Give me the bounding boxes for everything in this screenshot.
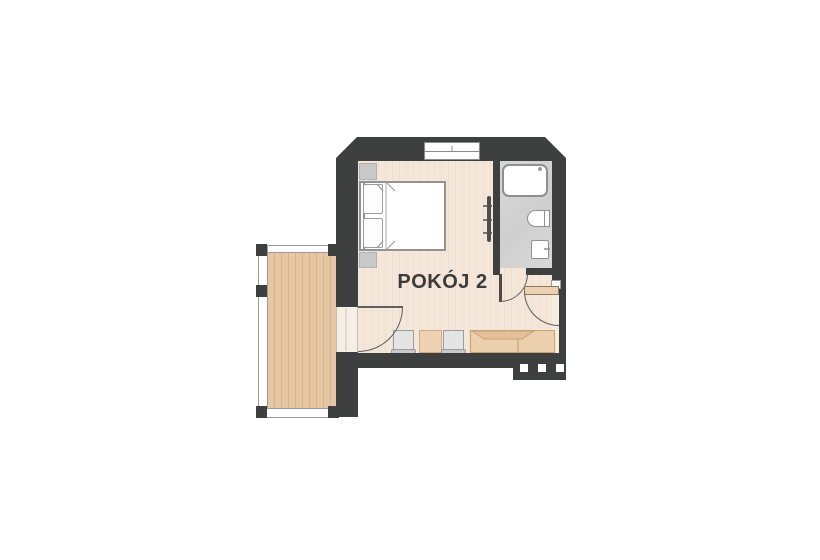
balcony-railing-top <box>258 245 338 253</box>
shower-drain <box>538 167 542 171</box>
wall-left-upper <box>336 158 358 307</box>
radiator <box>487 196 491 242</box>
bathroom-wall-left <box>493 161 500 275</box>
railing-post <box>256 285 267 297</box>
chair <box>443 330 464 351</box>
sink <box>531 240 549 259</box>
railing-post <box>256 406 267 418</box>
side-table <box>419 330 442 353</box>
desk <box>470 330 555 353</box>
pillow <box>363 184 383 214</box>
wall-right-upper <box>552 158 566 288</box>
window <box>424 142 480 160</box>
nightstand-upper <box>359 163 377 180</box>
entry-step <box>538 364 546 372</box>
floor-plan: POKÓJ 2 <box>0 0 820 560</box>
entry-step <box>556 364 564 372</box>
balcony-deck <box>268 253 338 408</box>
railing-post <box>256 244 267 256</box>
chair <box>393 330 414 351</box>
bathroom-wall-bottom <box>526 268 552 275</box>
entry-step <box>520 364 528 372</box>
balcony-railing-left <box>258 245 268 418</box>
balcony-doorway <box>336 307 358 352</box>
balcony-railing-bottom <box>258 408 338 418</box>
toilet <box>527 210 545 227</box>
wall-bottom <box>336 353 566 368</box>
pillow <box>363 218 383 248</box>
nightstand-lower <box>359 252 377 268</box>
room-label: POKÓJ 2 <box>380 271 505 294</box>
